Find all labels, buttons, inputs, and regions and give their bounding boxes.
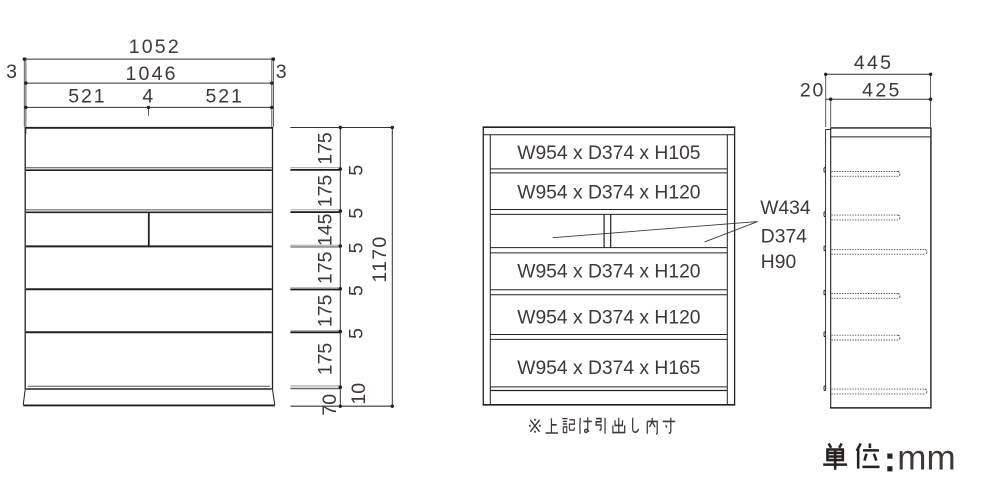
svg-text:175: 175 — [315, 175, 337, 208]
svg-text:W954 x D374 x H105: W954 x D374 x H105 — [517, 143, 700, 164]
svg-text:5: 5 — [345, 285, 367, 296]
svg-text:521: 521 — [205, 86, 243, 108]
svg-text:W954 x D374 x H120: W954 x D374 x H120 — [517, 262, 700, 283]
svg-text:175: 175 — [315, 251, 337, 284]
svg-text:5: 5 — [345, 328, 367, 339]
svg-text:H90: H90 — [761, 252, 796, 273]
svg-text:3: 3 — [6, 61, 17, 83]
svg-text:70: 70 — [319, 394, 341, 416]
svg-text:175: 175 — [315, 294, 337, 327]
svg-text:5: 5 — [345, 242, 367, 253]
svg-text:3: 3 — [276, 61, 287, 83]
svg-text:521: 521 — [68, 86, 106, 108]
svg-text:W954 x D374 x H165: W954 x D374 x H165 — [517, 358, 700, 379]
svg-text:D374: D374 — [761, 226, 807, 247]
svg-text:1170: 1170 — [369, 235, 391, 282]
svg-text:5: 5 — [345, 165, 367, 176]
svg-text:10: 10 — [348, 383, 370, 405]
svg-text:175: 175 — [315, 343, 337, 376]
svg-text:1046: 1046 — [126, 63, 178, 85]
svg-text:1052: 1052 — [129, 36, 181, 58]
svg-text:W434: W434 — [760, 198, 811, 219]
svg-text:20: 20 — [800, 79, 825, 101]
svg-text:4: 4 — [142, 86, 153, 108]
svg-text:175: 175 — [315, 132, 337, 165]
svg-text:5: 5 — [345, 208, 367, 219]
svg-text:425: 425 — [862, 80, 901, 102]
svg-text:445: 445 — [854, 52, 893, 74]
svg-text:mm: mm — [897, 438, 955, 477]
svg-text:W954 x D374 x H120: W954 x D374 x H120 — [517, 182, 700, 203]
svg-text:145: 145 — [315, 213, 337, 246]
svg-text:W954 x D374 x H120: W954 x D374 x H120 — [517, 307, 700, 328]
